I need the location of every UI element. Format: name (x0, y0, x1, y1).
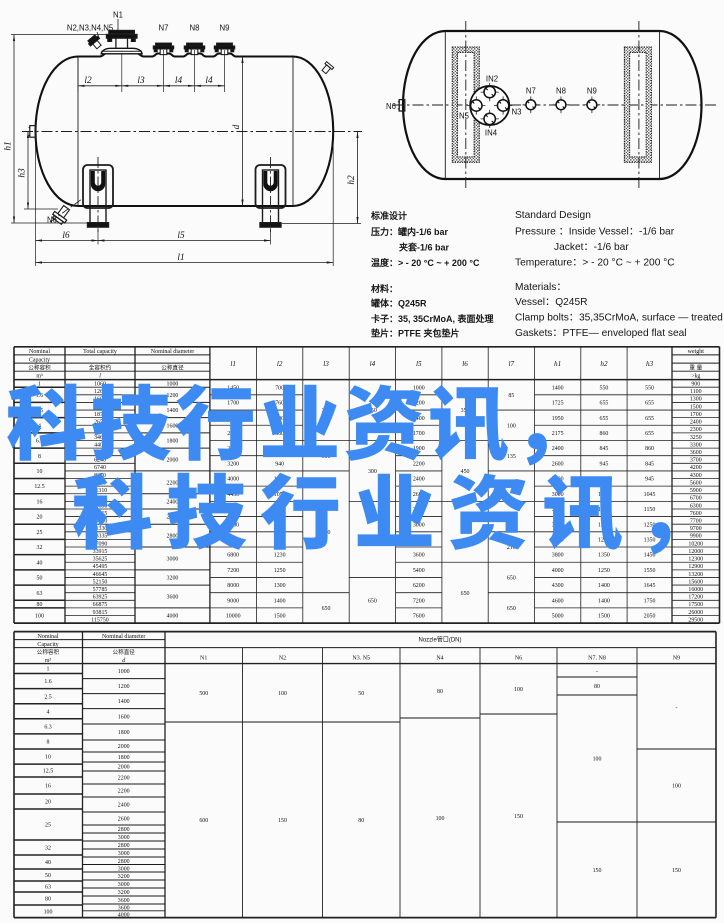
svg-text:100: 100 (278, 691, 287, 697)
svg-text:50: 50 (358, 691, 364, 697)
svg-text:650: 650 (322, 606, 331, 612)
svg-text:8000: 8000 (227, 583, 239, 589)
svg-text:6.3: 6.3 (44, 724, 51, 730)
svg-text:40: 40 (45, 860, 51, 866)
svg-text:10: 10 (45, 755, 51, 761)
svg-text:1645: 1645 (644, 583, 656, 589)
svg-text:1750: 1750 (644, 598, 656, 604)
svg-text:2200: 2200 (118, 776, 130, 782)
svg-text:IN4: IN4 (485, 129, 498, 138)
svg-text:25: 25 (45, 823, 51, 829)
svg-text:1550: 1550 (644, 568, 656, 574)
svg-text:63: 63 (45, 885, 51, 891)
svg-text:32: 32 (37, 545, 43, 551)
svg-text:1.6: 1.6 (44, 679, 51, 685)
svg-text:1500: 1500 (274, 614, 286, 620)
svg-text:IN2: IN2 (486, 75, 498, 84)
svg-text:4000: 4000 (118, 912, 130, 918)
svg-text:13200: 13200 (688, 572, 703, 578)
svg-text:3000: 3000 (118, 882, 130, 888)
svg-text:16000: 16000 (688, 587, 703, 593)
svg-text:6200: 6200 (413, 583, 425, 589)
svg-text:29500: 29500 (688, 617, 703, 623)
svg-text:Nominal diameter: Nominal diameter (151, 349, 195, 355)
svg-text:l4: l4 (205, 76, 213, 86)
svg-text:80: 80 (594, 684, 600, 690)
svg-text:1400: 1400 (598, 583, 610, 589)
svg-text:2000: 2000 (118, 744, 130, 750)
svg-text:550: 550 (600, 385, 609, 391)
svg-text:50: 50 (45, 873, 51, 879)
svg-text:N9: N9 (587, 87, 597, 96)
svg-text:100: 100 (593, 757, 602, 763)
svg-text:550: 550 (645, 385, 654, 391)
svg-text:罐体：Q245R: 罐体：Q245R (370, 298, 427, 309)
svg-text:卡子：35, 35CrMoA, 表面处理: 卡子：35, 35CrMoA, 表面处理 (371, 313, 494, 324)
svg-text:2800: 2800 (118, 827, 130, 833)
svg-text:N4: N4 (436, 656, 443, 662)
svg-text:l1: l1 (177, 253, 184, 263)
svg-text:N7: N7 (159, 24, 169, 33)
svg-text:26000: 26000 (688, 610, 703, 616)
svg-text:2800: 2800 (118, 859, 130, 865)
svg-text:公称容积: 公称容积 (37, 648, 60, 656)
svg-text:2800: 2800 (118, 843, 130, 849)
svg-text:标准设计: 标准设计 (370, 210, 407, 221)
svg-text:2400: 2400 (690, 420, 702, 426)
svg-text:150: 150 (514, 814, 523, 820)
svg-text:655: 655 (600, 401, 609, 407)
svg-text:weight: weight (688, 349, 705, 355)
svg-text:8: 8 (47, 740, 50, 746)
svg-text:N3: N3 (512, 108, 522, 117)
svg-text:N6: N6 (515, 656, 522, 662)
svg-text:Temperature：> - 20 °C ~ + 200: Temperature：> - 20 °C ~ + 200 °C (515, 258, 675, 269)
svg-text:5400: 5400 (413, 568, 425, 574)
svg-text:2000: 2000 (118, 765, 130, 771)
svg-text:d: d (122, 657, 126, 664)
svg-text:N2: N2 (279, 656, 286, 662)
svg-text:15600: 15600 (688, 579, 703, 585)
svg-text:32: 32 (45, 846, 51, 852)
svg-text:100: 100 (35, 614, 44, 620)
svg-text:2050: 2050 (644, 614, 656, 620)
svg-text:Vessel：Q245R: Vessel：Q245R (515, 297, 587, 308)
svg-text:h2: h2 (600, 360, 608, 368)
svg-text:150: 150 (593, 868, 602, 874)
svg-text:3600: 3600 (118, 898, 130, 904)
svg-text:40: 40 (37, 560, 43, 566)
svg-text:3300: 3300 (690, 442, 702, 448)
svg-text:17500: 17500 (688, 602, 703, 608)
svg-text:5000: 5000 (552, 614, 564, 620)
svg-text:4000: 4000 (167, 614, 179, 620)
svg-text:52150: 52150 (93, 579, 108, 585)
svg-text:655: 655 (645, 416, 654, 422)
svg-text:900: 900 (691, 382, 700, 388)
svg-text:650: 650 (461, 591, 470, 597)
svg-text:4000: 4000 (552, 568, 564, 574)
svg-text:12.5: 12.5 (43, 769, 53, 775)
svg-text:100: 100 (672, 784, 681, 790)
svg-text:1100: 1100 (690, 389, 702, 395)
svg-text:1500: 1500 (690, 404, 702, 410)
svg-text:N1: N1 (113, 11, 123, 20)
svg-text:h3: h3 (18, 168, 28, 178)
svg-text:1600: 1600 (118, 714, 130, 720)
svg-text:N3. N5: N3. N5 (352, 656, 370, 662)
svg-text:650: 650 (507, 576, 516, 582)
svg-text:>kg: >kg (691, 373, 700, 379)
svg-text:公称直径: 公称直径 (113, 648, 136, 656)
svg-text:-: - (676, 704, 678, 710)
svg-text:655: 655 (600, 416, 609, 422)
svg-text:80: 80 (358, 818, 364, 824)
svg-text:1700: 1700 (690, 412, 702, 418)
svg-text:Pressure ：Inside Vessel：-1/6: Pressure ：Inside Vessel：-1/6 bar (515, 227, 675, 238)
svg-text:1250: 1250 (598, 568, 610, 574)
svg-text:N7. N8: N7. N8 (588, 656, 606, 662)
svg-text:2300: 2300 (690, 427, 702, 433)
svg-text:2200: 2200 (118, 789, 130, 795)
svg-text:N2,N3,N4,N5: N2,N3,N4,N5 (67, 24, 114, 33)
svg-text:860: 860 (600, 431, 609, 437)
svg-text:7600: 7600 (413, 614, 425, 620)
svg-text:l6: l6 (62, 231, 70, 241)
svg-text:3600: 3600 (167, 595, 179, 601)
svg-text:1800: 1800 (118, 755, 130, 761)
svg-text:7200: 7200 (227, 568, 239, 574)
svg-text:1200: 1200 (118, 684, 130, 690)
svg-text:科技行业资讯，: 科技行业资讯， (72, 449, 724, 566)
svg-text:重 量: 重 量 (689, 364, 702, 372)
svg-text:l4: l4 (175, 76, 183, 86)
svg-text:Nozzle管口(DN): Nozzle管口(DN) (418, 636, 461, 644)
svg-text:655: 655 (645, 401, 654, 407)
svg-text:50: 50 (37, 576, 43, 582)
svg-text:3200: 3200 (118, 890, 130, 896)
svg-text:650: 650 (507, 606, 516, 612)
svg-text:-: - (596, 668, 598, 674)
svg-text:63925: 63925 (93, 595, 108, 601)
svg-text:25: 25 (37, 530, 43, 536)
svg-text:12.5: 12.5 (34, 484, 44, 490)
svg-text:66875: 66875 (93, 602, 108, 608)
svg-text:1300: 1300 (274, 583, 286, 589)
svg-text:N5: N5 (459, 112, 470, 121)
svg-text:垫片：PTFE 夹包垫片: 垫片：PTFE 夹包垫片 (371, 328, 460, 339)
svg-text:Nominal: Nominal (29, 349, 50, 355)
svg-text:80: 80 (45, 897, 51, 903)
svg-text:600: 600 (199, 818, 208, 824)
svg-text:h2: h2 (347, 175, 357, 185)
svg-text:材料：: 材料： (370, 283, 398, 294)
svg-text:Standard Design: Standard Design (515, 210, 591, 221)
svg-text:Gaskets：PTFE— enveloped flat s: Gaskets：PTFE— enveloped flat seal (515, 328, 687, 339)
svg-text:150: 150 (278, 818, 287, 824)
svg-text:2.5: 2.5 (44, 694, 51, 700)
svg-text:655: 655 (645, 431, 654, 437)
svg-text:100: 100 (44, 909, 53, 915)
svg-text:4600: 4600 (552, 598, 564, 604)
svg-text:N8: N8 (556, 87, 566, 96)
svg-text:l5: l5 (177, 231, 185, 241)
svg-text:N6: N6 (386, 102, 396, 111)
svg-text:N9: N9 (673, 656, 680, 662)
svg-text:Capacity: Capacity (37, 642, 58, 648)
svg-text:150: 150 (672, 868, 681, 874)
svg-text:Clamp bolts：35,35CrMoA, surfac: Clamp bolts：35,35CrMoA, surface — treate… (515, 313, 723, 324)
svg-text:3200: 3200 (118, 874, 130, 880)
svg-text:压力：罐内-1/6 bar: 压力：罐内-1/6 bar (371, 226, 449, 237)
svg-text:2600: 2600 (118, 817, 130, 823)
svg-text:Total capacity: Total capacity (83, 349, 117, 355)
svg-text:1400: 1400 (274, 598, 286, 604)
svg-text:650: 650 (368, 598, 377, 604)
svg-text:Materials：: Materials： (515, 282, 567, 293)
svg-text:N7: N7 (526, 87, 536, 96)
svg-text:d: d (232, 124, 242, 129)
svg-text:1400: 1400 (118, 699, 130, 705)
svg-text:m³: m³ (45, 658, 52, 664)
svg-text:l2: l2 (84, 76, 92, 86)
svg-text:115750: 115750 (91, 617, 109, 623)
svg-text:7200: 7200 (413, 598, 425, 604)
svg-text:46645: 46645 (93, 572, 108, 578)
svg-text:16: 16 (45, 784, 51, 790)
svg-text:3000: 3000 (118, 866, 130, 872)
svg-text:20: 20 (45, 800, 51, 806)
svg-text:1500: 1500 (598, 614, 610, 620)
svg-text:1000: 1000 (118, 669, 130, 675)
svg-text:1300: 1300 (690, 397, 702, 403)
svg-text:3000: 3000 (118, 835, 130, 841)
svg-text:9000: 9000 (227, 598, 239, 604)
svg-text:2400: 2400 (118, 803, 130, 809)
svg-text:4: 4 (47, 709, 50, 715)
svg-text:N8: N8 (190, 24, 200, 33)
svg-text:63: 63 (37, 591, 43, 597)
svg-text:1800: 1800 (118, 730, 130, 736)
svg-text:3250: 3250 (690, 435, 702, 441)
svg-text:温度：> - 20 °C ~ + 200 °C: 温度：> - 20 °C ~ + 200 °C (371, 257, 480, 268)
svg-text:57785: 57785 (93, 587, 108, 593)
svg-text:100: 100 (514, 687, 523, 693)
svg-text:1250: 1250 (274, 568, 286, 574)
svg-text:93815: 93815 (93, 610, 108, 616)
svg-text:1: 1 (47, 667, 50, 673)
svg-text:4300: 4300 (552, 583, 564, 589)
svg-text:3000: 3000 (118, 851, 130, 857)
svg-text:3200: 3200 (167, 576, 179, 582)
svg-text:Nominal: Nominal (38, 634, 59, 640)
svg-text:h3: h3 (646, 360, 654, 368)
svg-text:Jacket：-1/6 bar: Jacket：-1/6 bar (554, 242, 629, 253)
svg-text:10000: 10000 (226, 614, 241, 620)
svg-text:500: 500 (199, 691, 208, 697)
svg-text:h1: h1 (4, 141, 14, 150)
svg-text:l3: l3 (137, 76, 145, 86)
svg-text:N9: N9 (220, 24, 230, 33)
svg-text:N1: N1 (200, 656, 207, 662)
svg-text:夹套-1/6 bar: 夹套-1/6 bar (399, 242, 450, 253)
svg-text:80: 80 (437, 689, 443, 695)
svg-text:20: 20 (37, 515, 43, 521)
svg-text:100: 100 (436, 816, 445, 822)
svg-text:Nominal diameter: Nominal diameter (102, 634, 146, 640)
svg-text:1400: 1400 (598, 598, 610, 604)
svg-text:16: 16 (37, 499, 43, 505)
svg-text:17200: 17200 (688, 595, 703, 601)
